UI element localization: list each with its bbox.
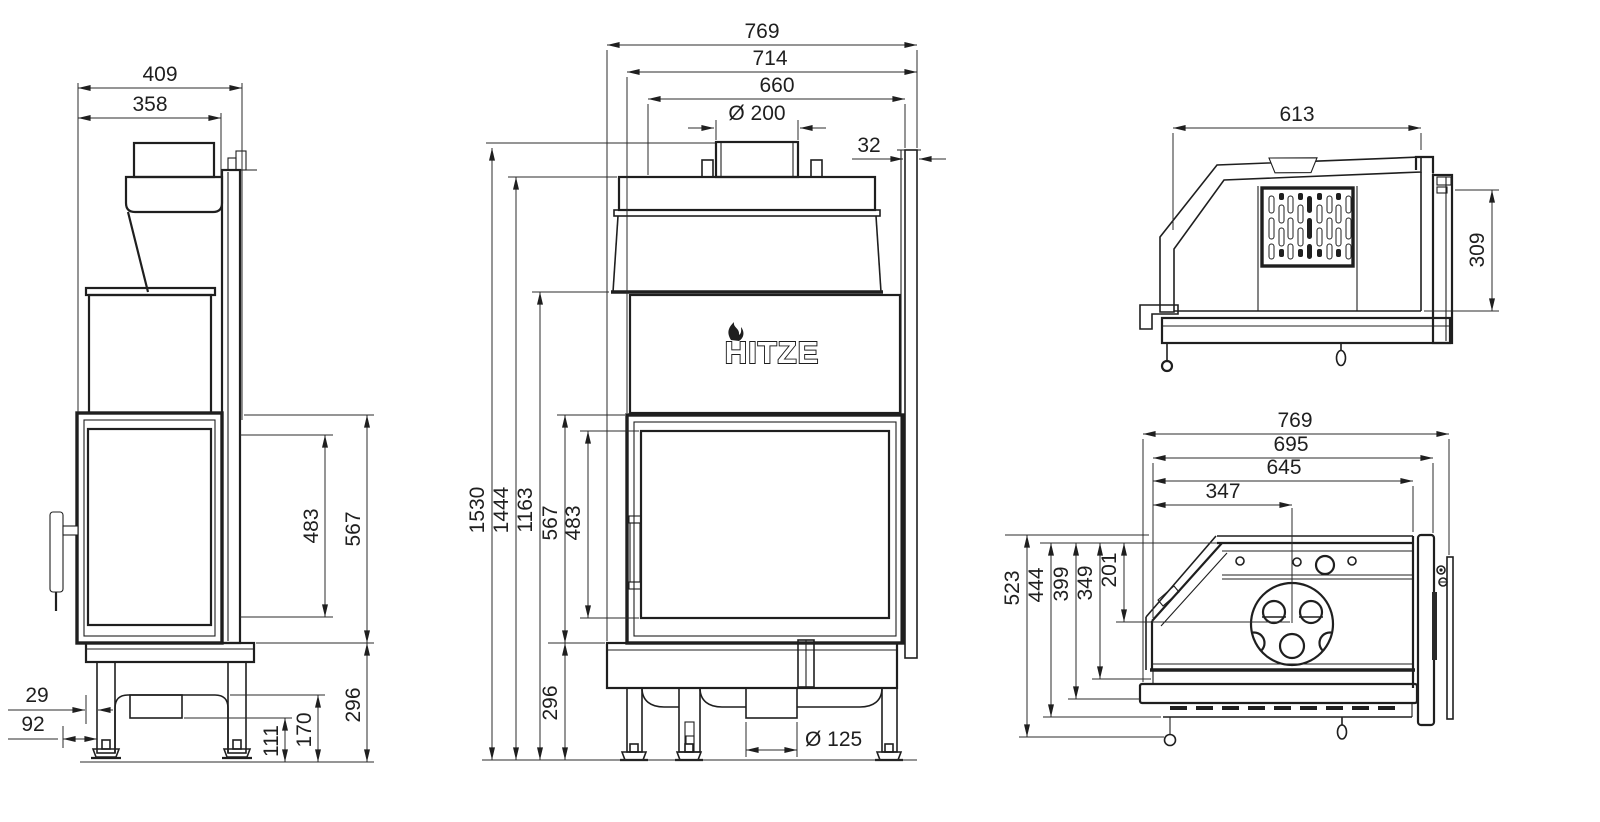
dim-front-panel-offset: 32 (857, 134, 880, 157)
dim-side-base-height: 296 (342, 687, 365, 722)
dim-front-glass-height: 483 (562, 505, 585, 540)
dim-side-base-inner-height: 170 (293, 712, 316, 747)
base-band-side (86, 643, 254, 662)
handle-ball-plan (1165, 735, 1176, 746)
dim-side-glass-height: 483 (300, 508, 323, 543)
top-plate-front (619, 177, 875, 210)
dim-rear-width: 613 (1279, 103, 1314, 126)
dim-front-top-plate-height: 1444 (490, 486, 513, 533)
dim-side-front-offset: 29 (25, 684, 48, 707)
top-hole (1236, 557, 1244, 565)
flue-collar-side (126, 177, 222, 212)
adjustable-foot (677, 752, 701, 760)
dim-plan-rail-depth: 399 (1050, 566, 1073, 601)
glass-side (88, 429, 211, 625)
dim-front-base-height: 296 (539, 685, 562, 720)
dim-front-top-width: 660 (759, 74, 794, 97)
dim-front-overall-width: 769 (744, 20, 779, 43)
panel-slot (1432, 592, 1437, 660)
plan-view-dimensions: 769 695 645 347 523 444 399 349 201 (1001, 409, 1449, 737)
rear-panel-front (905, 150, 917, 658)
mounting-bracket (1416, 157, 1433, 173)
dim-plan-glass-depth: 349 (1074, 565, 1097, 600)
glass-front (641, 431, 889, 618)
dim-plan-flue-center-y: 201 (1098, 552, 1121, 587)
dim-rear-depth: 309 (1466, 232, 1489, 267)
top-hole (1348, 557, 1356, 565)
dim-front-overall-height: 1530 (466, 487, 489, 534)
dim-plan-body-width: 695 (1273, 433, 1308, 456)
dim-plan-firebox-width: 645 (1266, 456, 1301, 479)
dim-plan-flue-center-x: 347 (1205, 480, 1240, 503)
screw (1439, 568, 1442, 571)
dim-front-flue-diameter: Ø 200 (728, 102, 785, 125)
rear-section-view: 613 309 (1140, 103, 1499, 371)
front-view-dimensions: 769 714 660 Ø 200 32 1530 1444 1163 567 (466, 20, 946, 760)
top-hole (1293, 558, 1301, 566)
door-front (627, 415, 903, 643)
door-side (77, 413, 222, 643)
dim-front-door-height: 567 (539, 505, 562, 540)
handle-ball (1162, 361, 1172, 371)
dim-plan-overall-width: 769 (1277, 409, 1312, 432)
flue-stub-front (716, 142, 798, 177)
dim-plan-overall-depth: 523 (1001, 570, 1024, 605)
front-view: HITZE (466, 20, 946, 760)
dim-front-body-width: 714 (752, 47, 787, 70)
technical-drawing-page: 409 358 483 567 296 29 92 111 (0, 0, 1600, 822)
plan-view-object (1140, 535, 1453, 746)
upper-body-side (89, 295, 211, 413)
front-rail-section (1162, 318, 1450, 343)
dim-front-outlet-diameter: Ø 125 (805, 728, 862, 751)
control-knob-plan (1338, 725, 1347, 739)
plan-view: 769 695 645 347 523 444 399 349 201 (1001, 409, 1453, 746)
brand-logo: HITZE (725, 322, 820, 370)
control-knob (1337, 351, 1346, 366)
rear-panel-side (222, 170, 240, 643)
dim-side-recess-height: 111 (260, 725, 283, 757)
dim-side-overall-depth: 409 (142, 63, 177, 86)
front-view-object: HITZE (482, 142, 921, 760)
door-handle (50, 512, 63, 592)
side-panel-plan (1418, 535, 1434, 725)
fireplace-dimension-drawing: 409 358 483 567 296 29 92 111 (0, 0, 1600, 822)
front-rail-plan (1140, 684, 1417, 703)
dim-front-hood-height: 1163 (514, 487, 537, 532)
adjustable-foot (877, 752, 901, 760)
top-hole-large (1316, 556, 1334, 574)
rear-section-object (1140, 157, 1452, 371)
dim-side-door-height: 567 (342, 511, 365, 546)
dim-plan-front-depth: 444 (1025, 567, 1048, 602)
door-hinge (630, 523, 640, 582)
flame-icon (728, 322, 743, 341)
adjustable-foot (622, 752, 646, 760)
side-view: 409 358 483 567 296 29 92 111 (8, 63, 374, 762)
flue-stub-side (134, 143, 214, 177)
dim-side-handle-offset: 92 (21, 713, 44, 736)
ash-outlet (746, 688, 797, 718)
dim-side-upper-depth: 358 (132, 93, 167, 116)
